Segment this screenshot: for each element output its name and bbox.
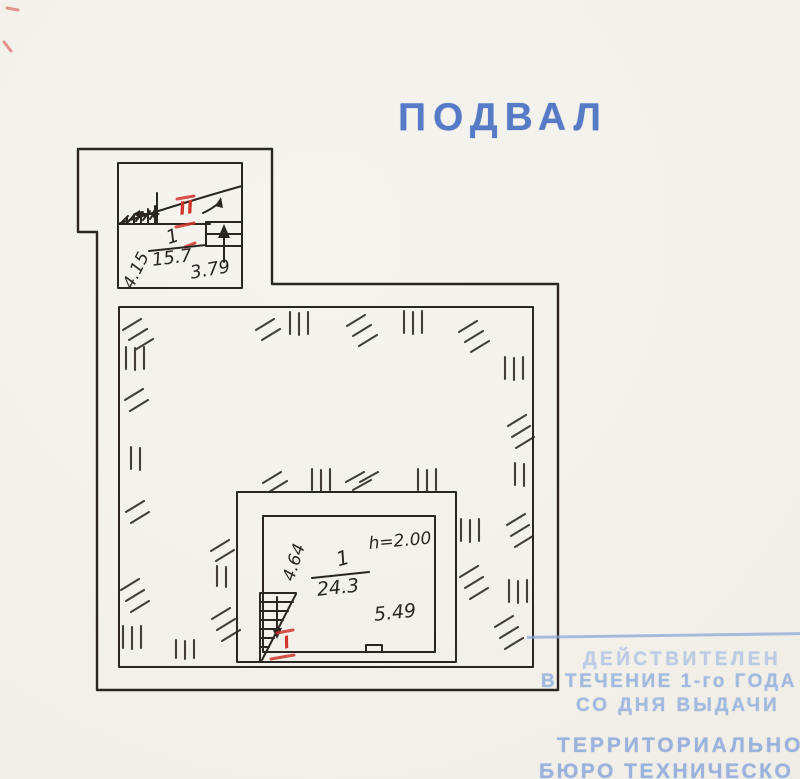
page-title: ПОДВАЛ	[398, 96, 608, 140]
corner-red-mark-1	[7, 8, 18, 10]
stamp-bureau-line-2: БЮРО ТЕХНИЧЕСКО	[539, 760, 793, 779]
stair-room-roman-label: II	[178, 199, 196, 219]
wall-hatch-marks	[121, 311, 534, 659]
cellar-room-area: 24.3	[316, 577, 360, 600]
main-area-inner-walls	[119, 307, 533, 667]
stamp-validity-line-2: В ТЕЧЕНИЕ 1-го ГОДА	[541, 671, 797, 693]
stair-room-area: 15.7	[151, 247, 193, 270]
corner-red-mark-2	[4, 42, 11, 51]
roman-i-underline	[271, 655, 294, 659]
scanned-floor-plan-page: ПОДВАЛ II 1 15.7 4.15 3.79 I 1 24.3 h=2.…	[0, 0, 800, 779]
cellar-room-bottom-dimension: 5.49	[373, 602, 417, 625]
red-pen-marks	[4, 8, 294, 659]
outer-wall-outline	[78, 149, 558, 690]
stamp-validity-line-1: ДЕЙСТВИТЕЛЕН	[583, 649, 781, 671]
stamp-validity-line-3: СО ДНЯ ВЫДАЧИ	[576, 695, 780, 717]
stamp-bureau-line-1: ТЕРРИТОРИАЛЬНО	[557, 734, 800, 758]
upper-stair-arrowhead-up	[218, 224, 230, 238]
cellar-room-door-notch	[366, 645, 382, 652]
